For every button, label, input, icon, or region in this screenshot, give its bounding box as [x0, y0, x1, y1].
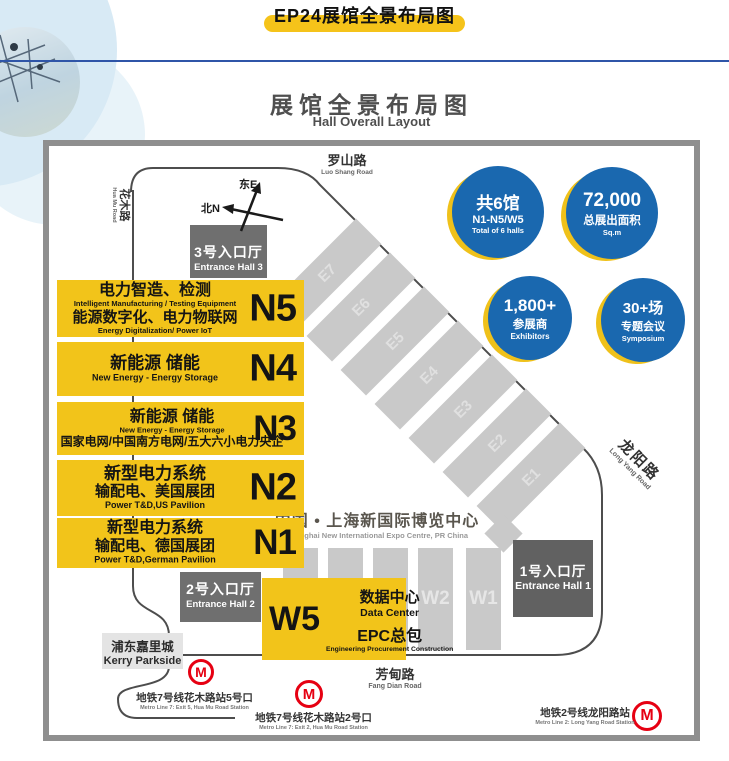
hall-n1-label: N1 [253, 523, 296, 563]
road-label-luoshan: 罗山路 Luo Shang Road [315, 150, 379, 176]
hall-block-w5: W5 数据中心 Data Center EPC总包 Engineering Pr… [262, 578, 406, 660]
hall-block-n5: 电力智造、检测 Intelligent Manufacturing / Test… [57, 280, 304, 337]
hall-block-n1: 新型电力系统 输配电、德国展团 Power T&D,German Pavilio… [57, 518, 304, 568]
page-title-en: Hall Overall Layout [43, 114, 700, 129]
ep24-layout-poster: EP24展馆全景布局图 展馆全景布局图 Hall Overall Layout … [0, 0, 729, 761]
banner-title: EP24展馆全景布局图 [274, 2, 455, 28]
road-label-huamu: 花木路 Hua Mu Road [111, 170, 133, 240]
stat-total-halls: 共6馆 N1-N5/W5 Total of 6 halls [452, 166, 544, 258]
hall-block-n2: 新型电力系统 输配电、美国展团 Power T&D,US Pavilion N2 [57, 460, 304, 516]
stat-exhibition-area: 72,000 总展出面积 Sq.m [566, 167, 658, 259]
hall-block-n4: 新能源 储能 New Energy - Energy Storage N4 [57, 342, 304, 396]
metro-icon: M [188, 659, 214, 685]
kerry-parkside-block: 浦东嘉里城 Kerry Parkside [102, 633, 183, 669]
hall-w1: W1 [466, 548, 501, 650]
hall-n2-label: N2 [249, 467, 296, 510]
hall-n4-label: N4 [249, 348, 296, 391]
entrance-hall-2: 2号入口厅 Entrance Hall 2 [180, 572, 261, 622]
hall-layout-map: E7 E6 E5 E4 E3 E2 E1 W2 W1 中国 • 上海新国际博览中… [43, 140, 700, 741]
metro-station-label-3: 地铁2号线龙阳路站 Metro Line 2: Long Yang Road S… [515, 705, 655, 726]
compass-icon: 东E 北N [189, 174, 309, 236]
hall-n3-label: N3 [253, 409, 296, 449]
metro-station-label-2: 地铁7号线花木路站2号口 Metro Line 7: Exit 2, Hua M… [246, 710, 381, 731]
stat-exhibitors: 1,800+ 参展商 Exhibitors [488, 276, 572, 360]
entrance-hall-1: 1号入口厅 Entrance Hall 1 [513, 540, 593, 617]
divider-line [0, 60, 729, 62]
banner: EP24展馆全景布局图 [0, 2, 729, 28]
road-label-fangdian: 芳甸路 Fang Dian Road [340, 664, 450, 690]
compass-north-label: 北N [201, 201, 220, 215]
hall-block-n3: 新能源 储能 New Energy - Energy Storage 国家电网/… [57, 402, 304, 455]
hall-w5-label: W5 [269, 600, 320, 639]
metro-station-label-1: 地铁7号线花木路站5号口 Metro Line 7: Exit 5, Hua M… [127, 690, 262, 711]
compass-east-label: 东E [239, 177, 257, 191]
metro-icon: M [295, 680, 323, 708]
stat-symposium: 30+场 专题会议 Symposium [601, 278, 685, 362]
hall-n5-label: N5 [249, 287, 296, 330]
